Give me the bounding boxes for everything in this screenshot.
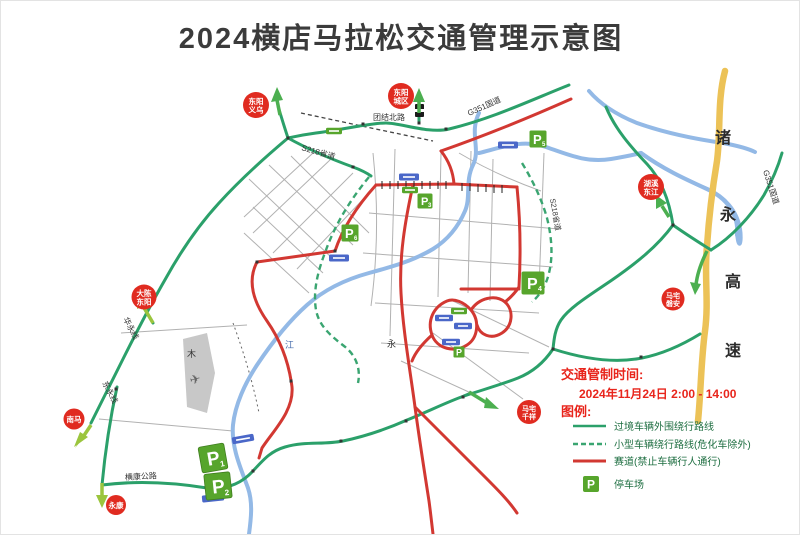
map-char-yong: 永 [387, 338, 396, 349]
race-connector [441, 151, 454, 184]
legend: 交通管制时间: 2024年11月24日 2:00 - 14:00 图例: 过境车… [561, 367, 751, 492]
race-central-vertical [401, 185, 433, 534]
expressway-char: 诸 [715, 128, 731, 147]
expressway-char: 永 [719, 205, 736, 224]
badge-line: 东阳 [137, 297, 152, 307]
junction-markers [101, 122, 675, 489]
map-characters: 木 江 永 [187, 338, 396, 359]
badge-mazhai-panan: 马宅 磐安 [662, 288, 685, 311]
legend-item-race: 赛道(禁止车辆行人通行) [614, 455, 721, 468]
badge-yongkang: 永康 [106, 495, 126, 515]
badge-line: 东阳 [249, 96, 264, 106]
badge-line: 磐安 [665, 299, 680, 308]
badge-line: 南马 [67, 414, 82, 424]
direction-arrows [74, 87, 707, 508]
small-vehicle-routes [315, 163, 551, 383]
road-southeast [553, 334, 700, 360]
map-char-mu: 木 [187, 348, 196, 359]
arrow-dongyang-yiwu [271, 87, 283, 115]
parking-p4-num: 4 [538, 286, 542, 293]
badge-nanma: 南马 [64, 409, 85, 430]
label-hengkang: 横康公路 [125, 470, 157, 482]
label-s218-topleft: S218省道 [300, 142, 336, 161]
badge-line: 东江 [644, 187, 659, 197]
parking-p2: P 2 [204, 472, 233, 501]
legend-item-small-vehicle: 小型车辆绕行路线(危化车除外) [614, 438, 751, 451]
badge-mazhai-qianxiang: 马宅 千祥 [517, 400, 541, 424]
parking-small: P [454, 347, 465, 358]
badge-line: 永康 [108, 500, 124, 510]
marathon-traffic-map: ✈ P 1 P 2 P 3 P [0, 0, 800, 535]
badge-line: 马宅 [522, 404, 536, 413]
race-loop-link1 [412, 335, 432, 361]
road-huxi-southwest [553, 225, 673, 349]
parking-p5-label: P [533, 132, 542, 147]
badge-dongyang-yiwu: 东阳 义乌 [243, 92, 269, 118]
badge-line: 马宅 [666, 291, 680, 300]
parking-p6: P 6 [342, 225, 359, 243]
page-title: 2024横店马拉松交通管理示意图 [179, 21, 624, 55]
legend-item-parking: 停车场 [614, 478, 644, 491]
badge-line: 大陈 [137, 288, 152, 298]
badge-line: 城区 [394, 96, 409, 106]
badge-line: 湖溪 [644, 178, 659, 188]
parking-small-label: P [456, 348, 462, 358]
parking-p5: P 5 [530, 131, 547, 149]
expressway-char: 速 [725, 342, 741, 360]
badge-huxi-dongjiang: 湖溪 东江 [638, 174, 664, 200]
race-southeast-diagonal [415, 407, 517, 513]
expressway-char: 高 [725, 272, 741, 291]
label-s218-center: S218省道 [548, 198, 564, 232]
badge-dongyang-chengqu: 东阳 城区 [388, 83, 414, 109]
legend-parking-icon: P [583, 476, 599, 492]
label-g351-right: G351国道 [761, 169, 782, 206]
control-time-value: 2024年11月24日 2:00 - 14:00 [579, 386, 737, 401]
map-char-jiang: 江 [285, 340, 294, 350]
parking-p4: P 4 [522, 272, 545, 295]
badge-line: 东阳 [394, 87, 409, 97]
race-east-vertical [517, 187, 520, 287]
badge-line: 千祥 [522, 412, 536, 421]
parking-p4-label: P [527, 276, 538, 293]
control-time-label: 交通管制时间: [561, 367, 643, 382]
parking-p1: P 1 [198, 443, 228, 473]
legend-title: 图例: [561, 404, 591, 419]
arrow-mazhai-qianxiang [469, 392, 499, 409]
map-svg: ✈ P 1 P 2 P 3 P [1, 1, 800, 535]
road-hengkang [102, 349, 553, 488]
destination-badges: 东阳 义乌 东阳 城区 湖溪 东江 马宅 磐安 马宅 千祥 大陈 东阳 [64, 83, 685, 515]
legend-parking-symbol: P [587, 478, 595, 492]
badge-dachen-dongyang: 大陈 东阳 [132, 285, 157, 310]
parking-p3: P 3 [418, 194, 433, 210]
airport-area: ✈ [183, 333, 215, 413]
label-tuanjie: 团结北路 [373, 112, 405, 122]
badge-line: 义乌 [248, 105, 264, 115]
legend-item-transit: 过境车辆外围绕行路线 [614, 420, 714, 433]
parking-p6-label: P [345, 226, 354, 241]
dashed-west-bypass [315, 177, 369, 383]
